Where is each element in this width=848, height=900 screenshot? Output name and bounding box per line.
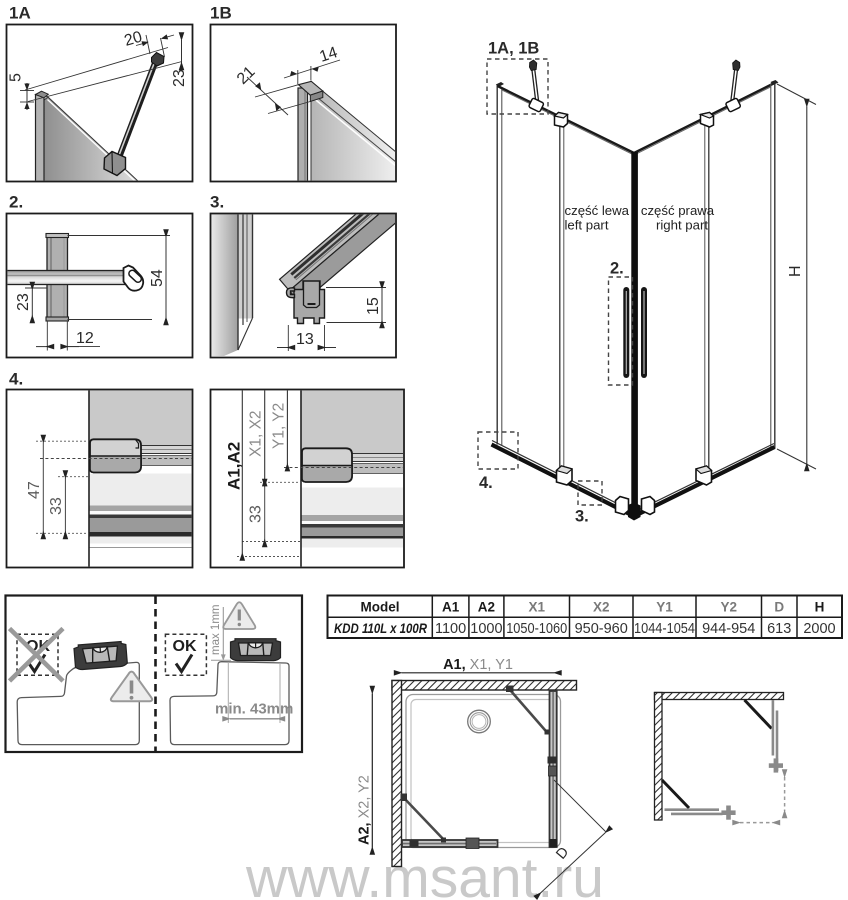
svg-text:A1, X1, Y1: A1, X1, Y1 (443, 657, 513, 673)
svg-text:613: 613 (767, 621, 791, 637)
svg-text:Model: Model (361, 600, 400, 615)
svg-text:13: 13 (296, 331, 314, 348)
svg-text:min. 43mm: min. 43mm (215, 701, 293, 718)
svg-text:1044-1054: 1044-1054 (634, 621, 695, 637)
svg-text:23: 23 (171, 69, 188, 87)
svg-text:D: D (774, 600, 784, 615)
svg-text:4.: 4. (479, 474, 493, 492)
svg-text:A1,A2: A1,A2 (225, 442, 244, 490)
svg-text:3.: 3. (210, 193, 224, 212)
svg-text:X1, X2: X1, X2 (248, 410, 265, 457)
svg-text:A1: A1 (442, 600, 460, 615)
svg-text:33: 33 (48, 497, 65, 515)
svg-text:2.: 2. (610, 260, 624, 278)
svg-text:Y2: Y2 (720, 600, 737, 615)
svg-text:X1: X1 (528, 600, 545, 615)
svg-text:3.: 3. (575, 508, 589, 526)
svg-text:1B: 1B (210, 4, 232, 23)
svg-text:2000: 2000 (803, 621, 835, 637)
svg-text:Y1, Y2: Y1, Y2 (271, 403, 288, 449)
svg-text:KDD 110L x 100R: KDD 110L x 100R (334, 620, 428, 636)
svg-text:2.: 2. (9, 193, 23, 212)
svg-text:left part: left part (565, 218, 609, 233)
svg-text:47: 47 (26, 481, 43, 499)
svg-text:H: H (815, 600, 825, 615)
svg-text:OK: OK (173, 638, 197, 655)
svg-text:15: 15 (365, 297, 382, 315)
svg-text:944-954: 944-954 (702, 621, 755, 637)
svg-text:12: 12 (76, 330, 94, 347)
svg-text:1000: 1000 (470, 621, 502, 637)
svg-text:część prawa: część prawa (641, 203, 715, 218)
svg-text:1A, 1B: 1A, 1B (488, 40, 539, 58)
svg-text:max 1mm: max 1mm (210, 605, 222, 655)
svg-text:right part: right part (656, 218, 708, 233)
svg-text:54: 54 (149, 269, 166, 287)
svg-text:A2: A2 (478, 600, 495, 615)
svg-text:1050-1060: 1050-1060 (506, 621, 567, 637)
svg-text:5: 5 (8, 73, 25, 82)
svg-text:4.: 4. (9, 370, 23, 389)
svg-text:Y1: Y1 (656, 600, 673, 615)
svg-text:950-960: 950-960 (575, 621, 628, 637)
svg-text:H: H (787, 265, 804, 277)
svg-text:część lewa: część lewa (565, 203, 630, 218)
svg-text:33: 33 (248, 505, 265, 523)
svg-text:1100: 1100 (435, 621, 466, 637)
svg-text:X2: X2 (593, 600, 610, 615)
svg-text:www.msant.ru: www.msant.ru (245, 846, 604, 900)
svg-text:A2, X2, Y2: A2, X2, Y2 (357, 775, 373, 845)
svg-text:23: 23 (15, 293, 32, 311)
svg-text:1A: 1A (9, 4, 31, 23)
